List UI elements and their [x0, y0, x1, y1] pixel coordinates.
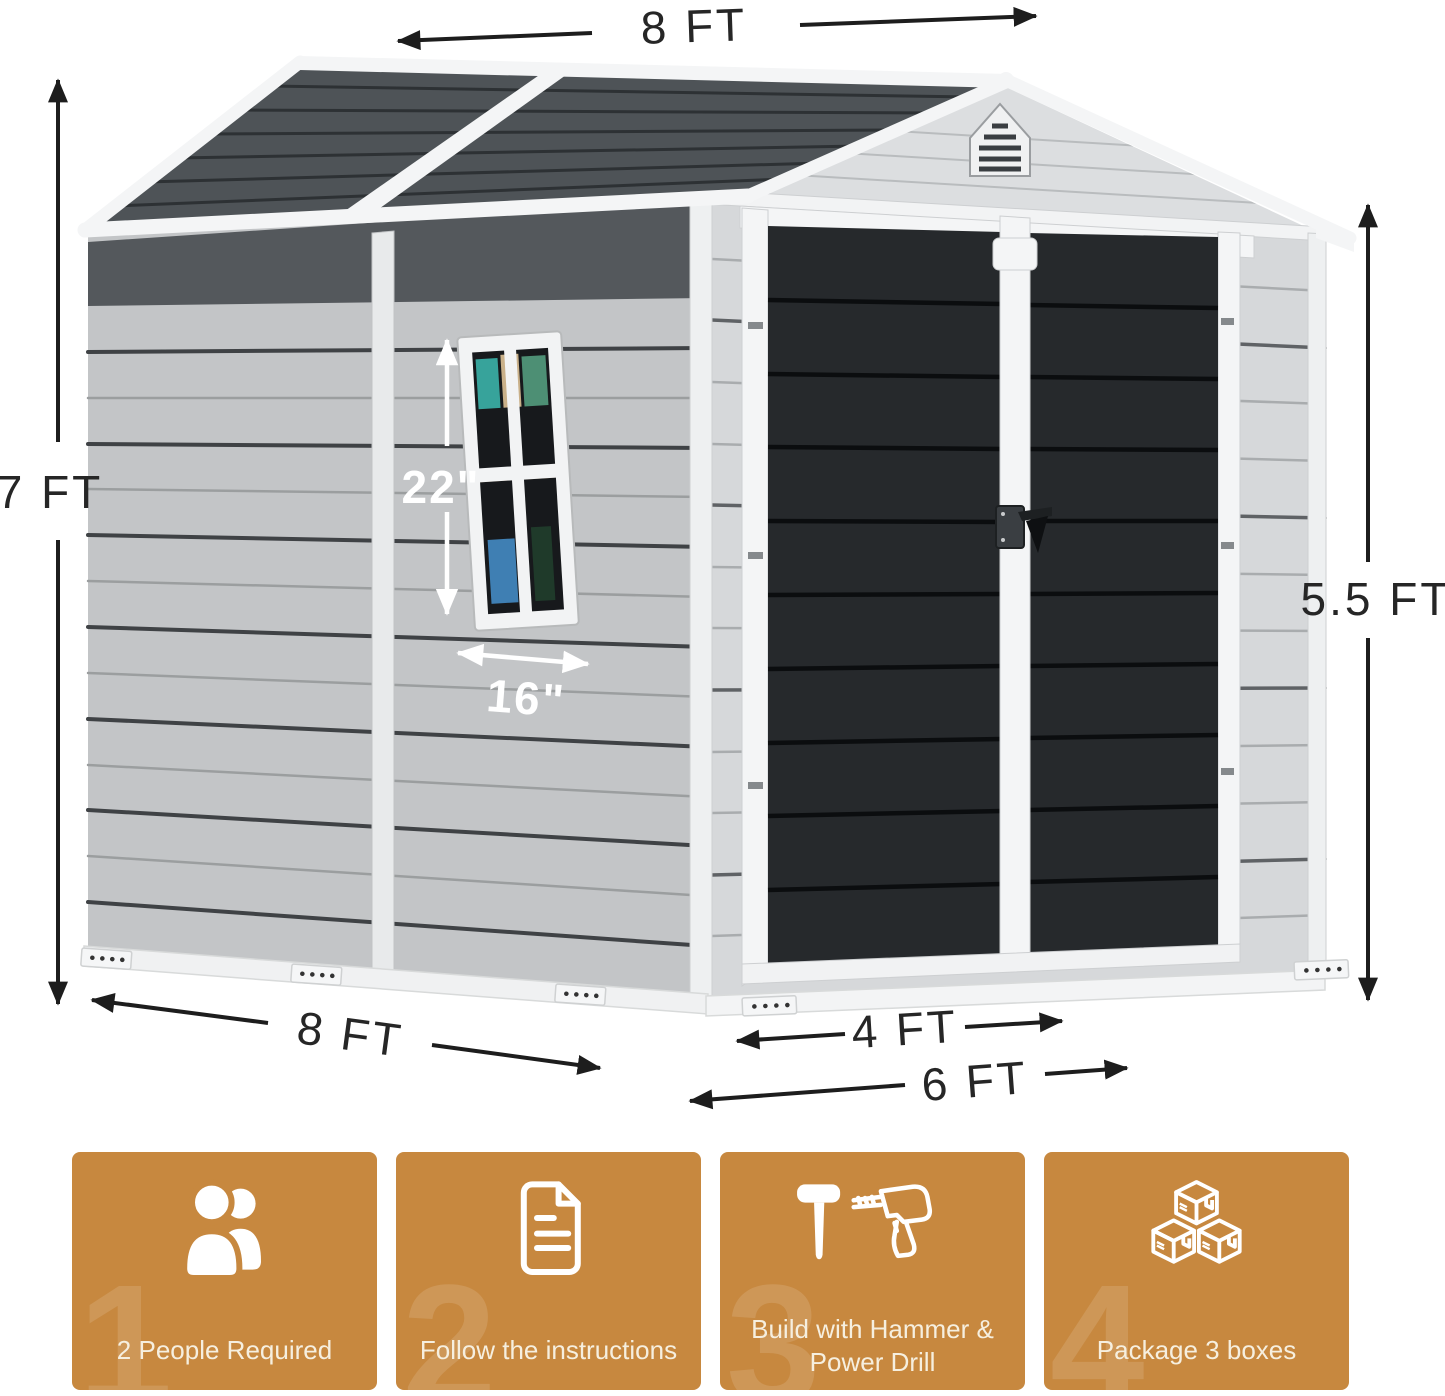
document-icon [396, 1170, 701, 1290]
feature-box-tools: 3 Build with Hammer [720, 1152, 1025, 1390]
drill-glyph [853, 1187, 929, 1256]
door-center-mullion [1000, 216, 1030, 966]
dim-roof-length: 8 FT [398, 0, 1036, 54]
dim-label-roof-length: 8 FT [640, 0, 748, 54]
feature-box-instructions: 2 Follow the instructions [396, 1152, 701, 1390]
hammer-drill-icon [720, 1170, 1025, 1285]
shed-dimension-diagram: 8 FT 7 FT 5.5 FT 8 FT 4 FT 6 FT [0, 0, 1445, 1150]
dim-label-wall-height: 7 FT [0, 466, 103, 518]
feature-box-people: 1 2 People Required [72, 1152, 377, 1390]
feature-box-package: 4 Package 3 boxes [1044, 1152, 1349, 1390]
door-mullion-cap [993, 238, 1037, 270]
feature-label-line1: Build with Hammer & [720, 1313, 1025, 1346]
door-frame-right [1218, 232, 1240, 958]
product-infographic: 8 FT 7 FT 5.5 FT 8 FT 4 FT 6 FT [0, 0, 1445, 1396]
feature-label: Follow the instructions [396, 1334, 701, 1367]
feature-label: 2 People Required [72, 1334, 377, 1367]
dim-base-depth: 8 FT [92, 1000, 600, 1068]
dim-label-door-height: 5.5 FT [1301, 573, 1445, 625]
side-wall-panel [88, 197, 706, 998]
hammer-glyph [797, 1184, 840, 1259]
people-icon [72, 1170, 377, 1290]
shed-side-wall [88, 197, 706, 998]
feature-label-line2: Power Drill [720, 1346, 1025, 1379]
dim-label-window-height: 22" [402, 461, 481, 513]
side-wall-seam-trim [372, 231, 394, 986]
dim-label-base-depth: 8 FT [294, 1001, 407, 1067]
feature-label: Build with Hammer & Power Drill [720, 1313, 1025, 1378]
corner-trim-left [690, 199, 712, 1000]
dim-label-front-width: 6 FT [920, 1051, 1030, 1111]
dim-label-door-width: 4 FT [850, 1000, 960, 1058]
dim-wall-height: 7 FT [0, 80, 103, 1004]
boxes-icon [1044, 1170, 1349, 1290]
dim-label-window-width: 16" [485, 669, 568, 727]
feature-boxes-row: 1 2 People Required 2 [0, 1152, 1445, 1390]
dim-front-width: 6 FT [690, 1051, 1127, 1111]
roof-peak-cap [998, 72, 1014, 88]
feature-label: Package 3 boxes [1044, 1334, 1349, 1367]
shed-doors [740, 206, 1254, 986]
